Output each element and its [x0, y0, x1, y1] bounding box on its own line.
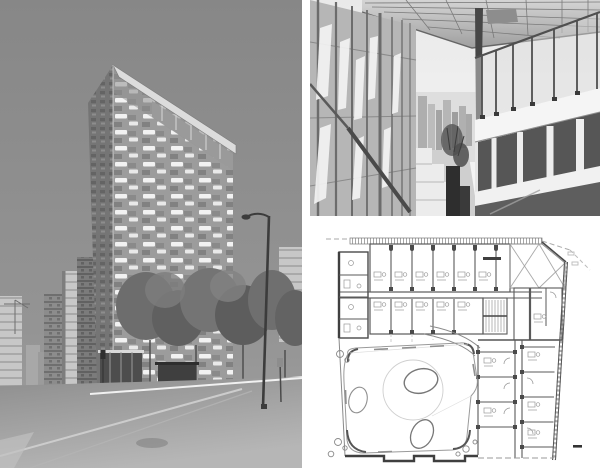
tower-photo-drawing [0, 0, 302, 468]
canopy-skylight [486, 9, 518, 24]
terrace-facade-photo [310, 0, 600, 216]
floor-plan-drawing [318, 230, 600, 468]
plan-paper [318, 230, 600, 468]
tower-street-photo [0, 0, 302, 468]
floor-plan-svg [318, 230, 600, 468]
road [0, 377, 302, 468]
bus-shelter-roof [155, 362, 199, 365]
curtain-wall [310, 0, 416, 216]
scale-bar [573, 445, 582, 448]
terrace-photo-drawing [310, 0, 600, 216]
road-patch [136, 438, 168, 448]
